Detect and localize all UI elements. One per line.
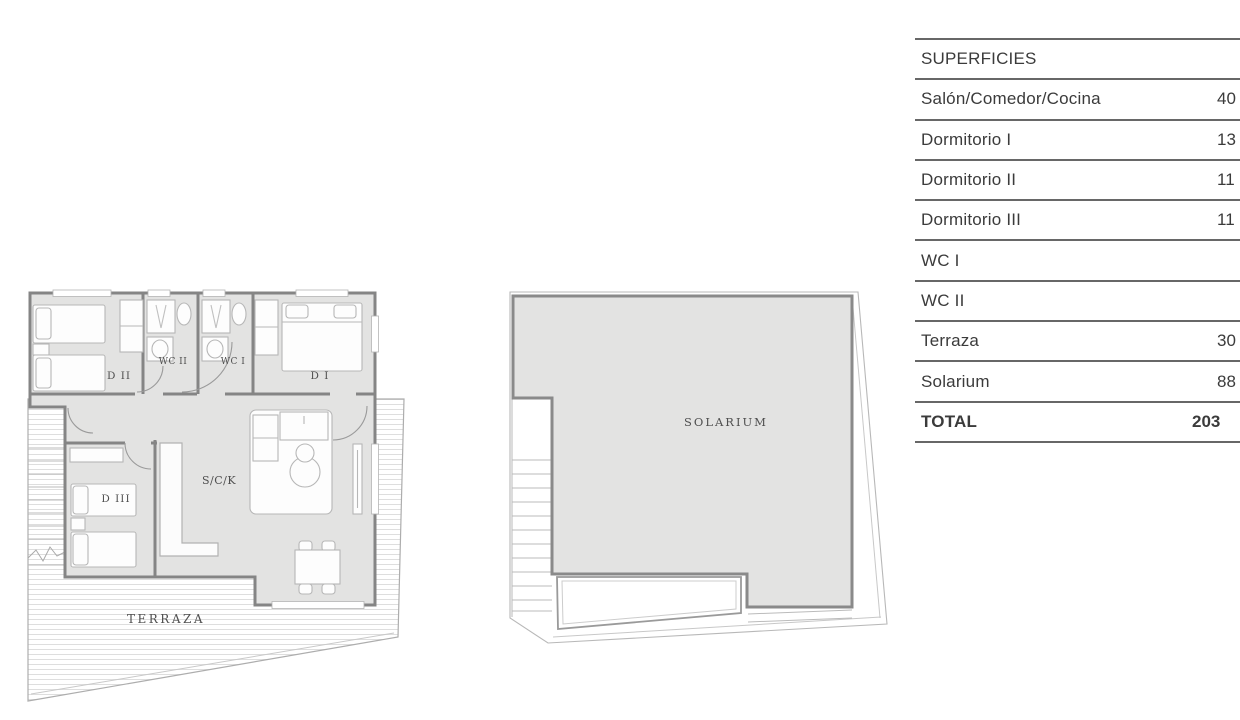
- room-label-wc-1: WC I: [203, 357, 263, 367]
- table-row-salon: Salón/Comedor/Cocina 40: [915, 80, 1240, 120]
- table-row-terraza: Terraza 30: [915, 322, 1240, 362]
- solarium-stairs: [512, 398, 552, 617]
- table-row-total: TOTAL 203: [915, 403, 1240, 443]
- table-row-dormitorio-1: Dormitorio I 13: [915, 121, 1240, 161]
- table-row-wc-2: WC II: [915, 282, 1240, 322]
- row-value: 13: [1217, 130, 1236, 150]
- floor-plan-solarium: [510, 292, 887, 643]
- roof-opening: [557, 577, 741, 629]
- row-value: 11: [1217, 210, 1235, 230]
- superficies-table: SUPERFICIES Salón/Comedor/Cocina 40 Dorm…: [915, 38, 1240, 443]
- solarium-slab: [513, 296, 852, 607]
- row-value: 40: [1217, 89, 1236, 109]
- row-value: 203: [1192, 412, 1220, 432]
- row-value: 30: [1217, 331, 1236, 351]
- room-label-dormitorio-3: D III: [86, 493, 146, 505]
- floor-plan-ground: [28, 290, 404, 701]
- room-label-terraza: TERRAZA: [103, 612, 229, 626]
- superficies-header-row: SUPERFICIES: [915, 40, 1240, 80]
- table-row-dormitorio-2: Dormitorio II 11: [915, 161, 1240, 201]
- row-value: 11: [1217, 170, 1235, 190]
- table-row-wc-1: WC I: [915, 241, 1240, 281]
- floorplan-page: { "superficies": { "header": "SUPERFICIE…: [0, 0, 1240, 720]
- room-label-solarium: SOLARIUM: [663, 415, 789, 429]
- table-row-solarium: Solarium 88: [915, 362, 1240, 402]
- room-label-salon-comedor-cocina: S/C/K: [184, 474, 254, 487]
- room-label-dormitorio-2: D II: [89, 370, 149, 382]
- room-label-wc-2: WC II: [143, 357, 203, 367]
- row-value: 88: [1217, 372, 1236, 392]
- superficies-title: SUPERFICIES: [915, 49, 1037, 69]
- table-row-dormitorio-3: Dormitorio III 11: [915, 201, 1240, 241]
- room-label-dormitorio-1: D I: [290, 370, 350, 382]
